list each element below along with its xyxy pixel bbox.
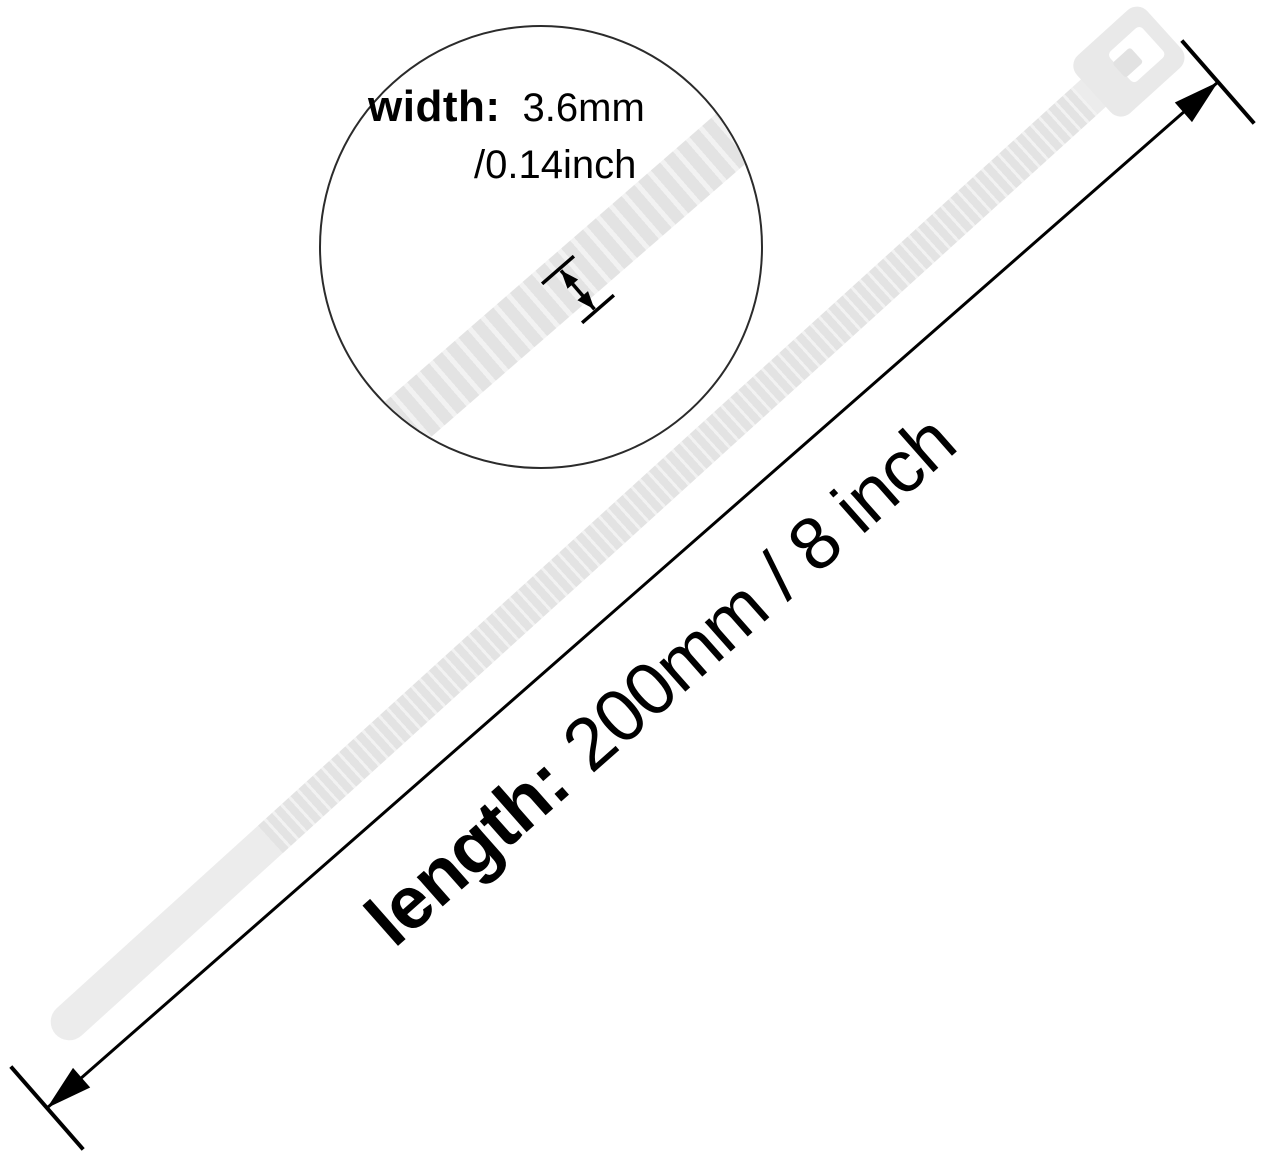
product-dimension-diagram: width:3.6mm /0.14inch length:200mm / 8 i… xyxy=(0,0,1270,1165)
width-label: width: xyxy=(368,82,501,131)
length-arrowhead-icon xyxy=(47,1068,90,1108)
length-arrowhead-icon xyxy=(1175,82,1218,122)
width-value-inch: /0.14inch xyxy=(474,143,636,188)
cable-tie-head-slot xyxy=(1107,25,1166,84)
width-value-mm: 3.6mm xyxy=(523,86,645,130)
length-dimension-tick-tip-end xyxy=(11,1067,83,1150)
cable-tie-pawl xyxy=(1112,47,1143,78)
length-label: length: xyxy=(350,740,584,961)
width-annotation-line1: width:3.6mm xyxy=(368,82,645,132)
length-dimension-tick-head-end xyxy=(1182,41,1254,124)
